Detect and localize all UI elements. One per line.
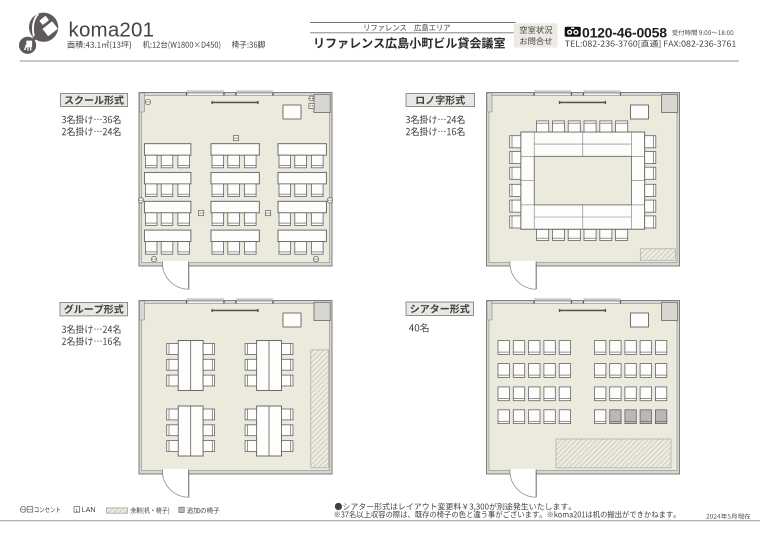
svg-text:L: L <box>76 507 79 513</box>
svg-text:koma201: koma201 <box>69 19 155 42</box>
svg-text:LAN: LAN <box>82 507 96 514</box>
svg-text:0120-46-0058: 0120-46-0058 <box>582 24 667 40</box>
